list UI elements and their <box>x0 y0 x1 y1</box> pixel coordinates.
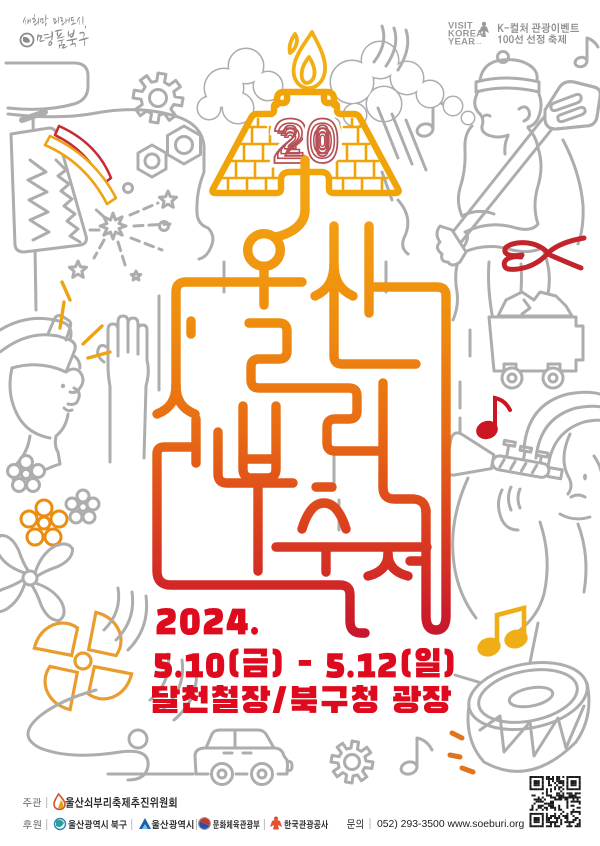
svg-text:052) 293-3500 www.soeburi.org: 052) 293-3500 www.soeburi.org <box>377 819 525 830</box>
svg-text:.... ...: .... ... <box>470 40 482 46</box>
